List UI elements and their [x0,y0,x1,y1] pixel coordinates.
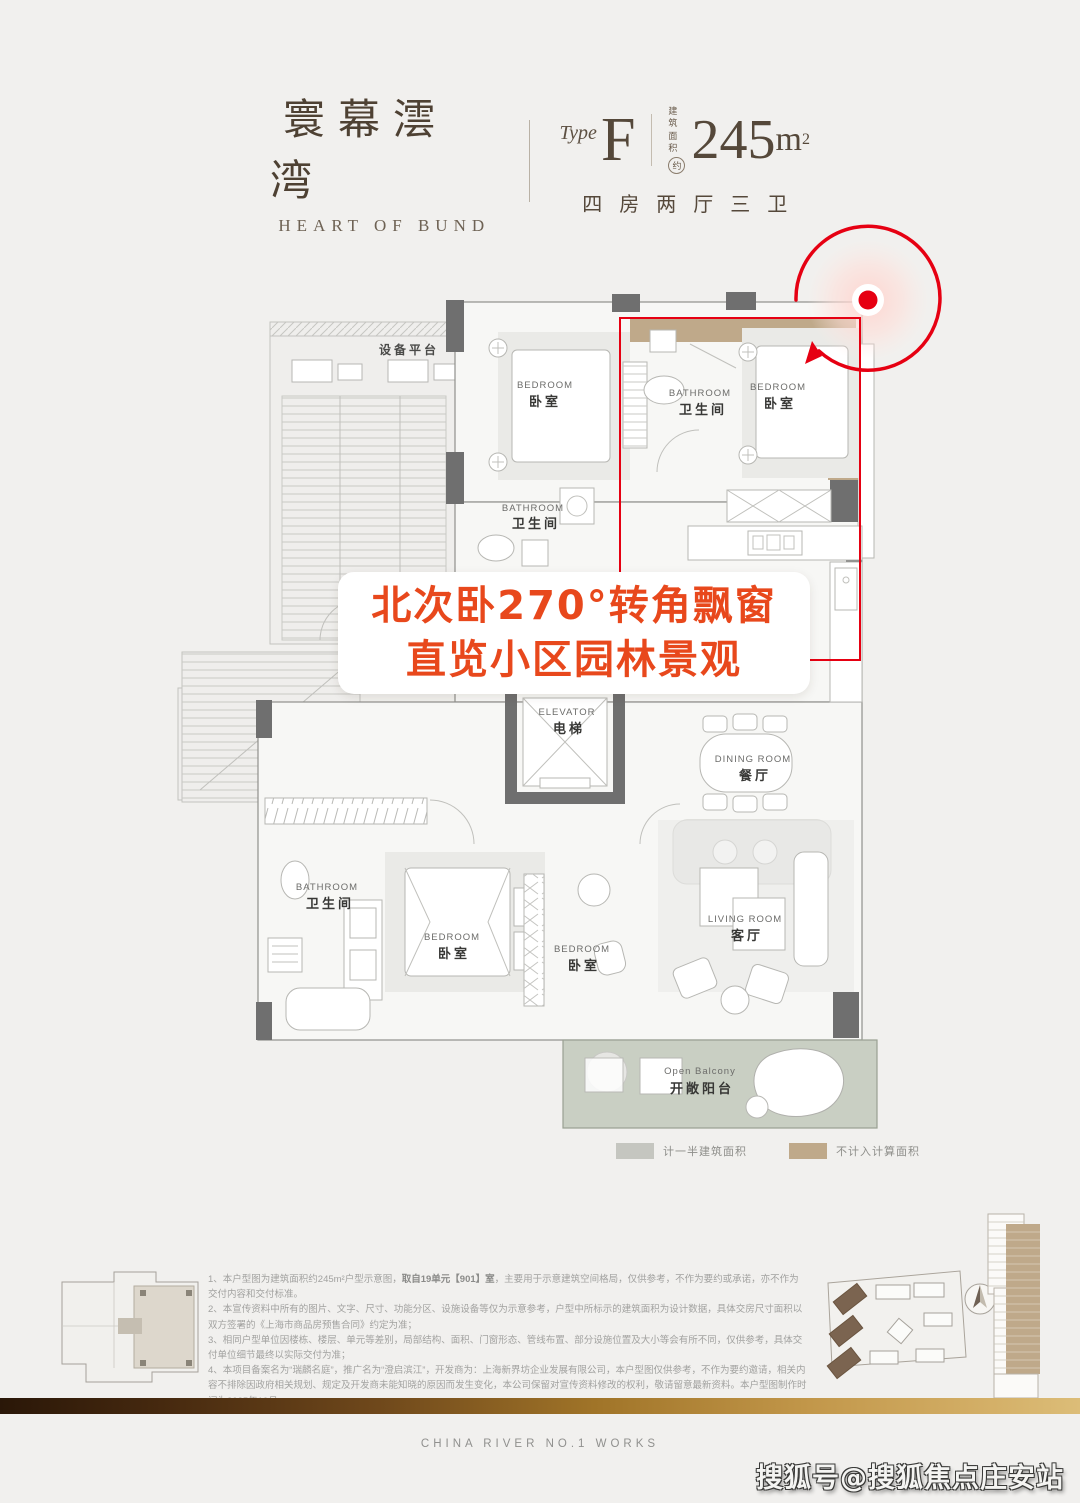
poster-page: 寰幕澐湾 HEART OF BUND Type F 建筑 面积 约 245 [0,0,1080,1503]
disclaimer-line-3: 3、相同户型单位因楼栋、楼层、单元等差别，局部结构、面积、门窗形态、管线布置、部… [208,1333,808,1363]
disclaimer-line-2: 2、本宣传资料中所有的图片、文字、尺寸、功能分区、设施设备等仅为示意参考，户型中… [208,1302,808,1332]
area-legend: 计一半建筑面积 不计入计算面积 [616,1143,920,1159]
footer-works-text: CHINA RIVER NO.1 WORKS [0,1438,1080,1450]
svg-text:BEDROOM: BEDROOM [424,932,480,943]
marker-dot-icon [859,291,878,310]
footer-gradient-bar [0,1398,1080,1414]
svg-text:卫生间: 卫生间 [306,896,354,911]
site-plan [827,1271,995,1379]
svg-text:客厅: 客厅 [731,928,763,943]
svg-text:BEDROOM: BEDROOM [554,944,610,955]
svg-text:电梯: 电梯 [553,721,585,736]
svg-text:Open Balcony: Open Balcony [664,1066,736,1077]
bedroom-master: BEDROOM 卧室 [385,852,545,992]
svg-text:BATHROOM: BATHROOM [296,882,358,893]
legend-item-excluded-area: 不计入计算面积 [789,1143,920,1159]
svg-text:卫生间: 卫生间 [512,516,560,531]
svg-text:餐厅: 餐厅 [738,768,771,783]
svg-text:卫生间: 卫生间 [679,402,727,417]
svg-text:开敞阳台: 开敞阳台 [670,1081,734,1096]
disclaimer-line-1: 1、本户型图为建筑面积约245m²户型示意图，取自19单元【901】室，主要用于… [208,1272,808,1302]
elevator: ELEVATOR 电梯 [523,698,607,788]
svg-text:卧室: 卧室 [438,946,470,961]
svg-text:卧室: 卧室 [529,394,561,409]
svg-text:ELEVATOR: ELEVATOR [538,707,595,718]
svg-text:卧室: 卧室 [764,396,796,411]
excluded-area-swatch [789,1143,827,1159]
svg-text:BEDROOM: BEDROOM [517,380,573,391]
svg-text:LIVING ROOM: LIVING ROOM [708,914,782,925]
equipment-platform-label: 设备平台 [379,342,439,357]
feature-callout: 北次卧270°转角飘窗 直览小区园林景观 [338,572,810,694]
callout-line-1: 北次卧270°转角飘窗 [371,579,777,633]
svg-text:BEDROOM: BEDROOM [750,382,806,393]
callout-line-2: 直览小区园林景观 [406,633,742,687]
sohu-watermark: 搜狐号@搜狐焦点庄安站 [756,1456,1064,1495]
key-plan [62,1272,198,1382]
svg-text:卧室: 卧室 [568,958,600,973]
living-room: LIVING ROOM 客厅 [658,820,854,1014]
legend-item-half-area: 计一半建筑面积 [616,1143,747,1159]
half-area-swatch [616,1143,654,1159]
bedroom-north-left: BEDROOM 卧室 [489,332,647,480]
dining-room: DINING ROOM 餐厅 [700,714,792,812]
disclaimer-block: 1、本户型图为建筑面积约245m²户型示意图，取自19单元【901】室，主要用于… [208,1272,808,1409]
svg-text:BATHROOM: BATHROOM [502,503,564,514]
svg-text:BATHROOM: BATHROOM [669,388,731,399]
corridor-wardrobe [265,798,427,824]
open-balcony: Open Balcony 开敞阳台 [563,1040,877,1128]
building-elevation [988,1214,1040,1398]
svg-text:DINING ROOM: DINING ROOM [715,754,791,765]
